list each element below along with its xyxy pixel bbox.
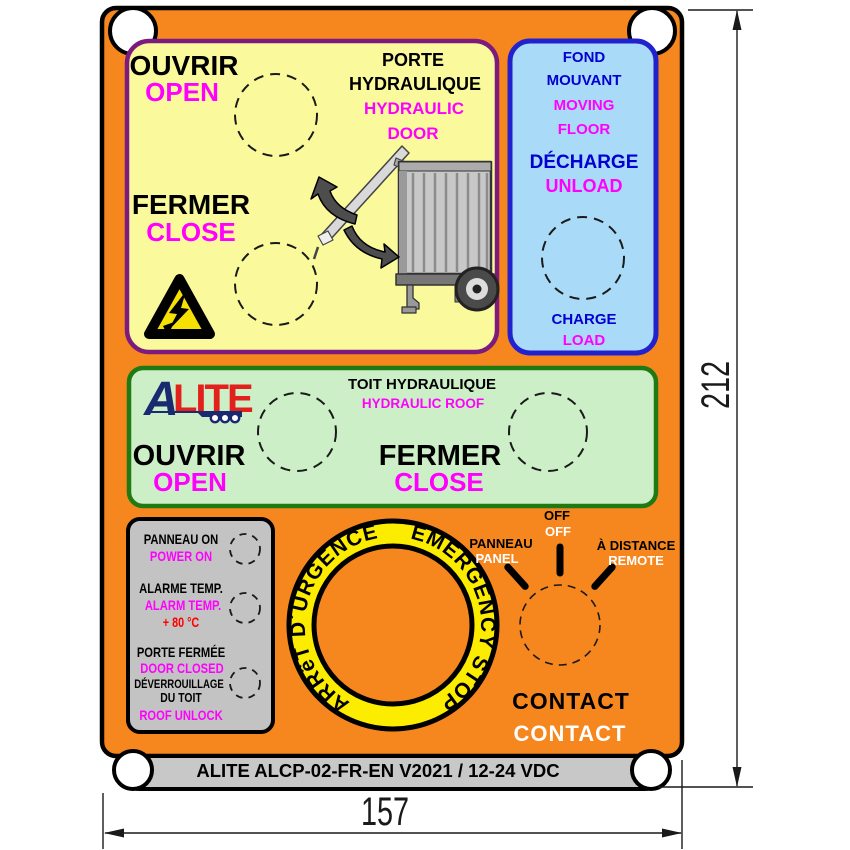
selector-panel-label-fr: PANNEAU (469, 537, 532, 550)
alite-logo: A LITE (143, 373, 253, 426)
power-on-label-fr: PANNEAU ON (144, 532, 218, 546)
trailer-foot (402, 307, 416, 313)
door-title-fr-1: PORTE (382, 51, 444, 69)
roof-unlock-label-en: ROOF UNLOCK (139, 708, 222, 722)
bottom-right-notch (632, 751, 670, 789)
arrow-right (662, 829, 682, 838)
contact-label-en: CONTACT (514, 723, 627, 745)
logo-wheel-2 (221, 414, 229, 422)
wheel-hub (473, 285, 482, 294)
door-open-label-fr: OUVRIR (130, 52, 239, 80)
door-title-fr-2: HYDRAULIQUE (349, 75, 481, 93)
floor-unload-fr: DÉCHARGE (530, 153, 639, 172)
door-close-label-en: CLOSE (146, 219, 236, 245)
door-title-en-1: HYDRAULIC (364, 100, 464, 117)
estop-ring: ARRêT D´URGENCE EMERGENCY STOP (287, 520, 500, 729)
selector-off-label-en: OFF (545, 525, 571, 538)
arrow-up (733, 10, 742, 30)
selector-remote-label-en: REMOTE (608, 554, 664, 567)
door-close-label-fr: FERMER (132, 191, 250, 219)
alarm-temp-label-en: ALARM TEMP. (145, 598, 221, 612)
selector-panel-label-en: PANEL (475, 552, 518, 565)
contact-label-fr: CONTACT (512, 690, 630, 713)
power-on-label-en: POWER ON (150, 549, 212, 563)
floor-title-en-2: FLOOR (558, 122, 611, 137)
floor-unload-en: UNLOAD (546, 177, 623, 195)
bottom-left-notch (114, 751, 152, 789)
floor-title-en-1: MOVING (554, 98, 615, 113)
floor-load-en: LOAD (563, 333, 606, 348)
arrow-left (104, 829, 124, 838)
door-closed-label-en: DOOR CLOSED (140, 661, 223, 675)
alarm-temp-value: + 80 °C (163, 616, 199, 630)
arrow-down (733, 767, 742, 787)
floor-load-fr: CHARGE (551, 312, 616, 327)
width-dimension-value: 157 (361, 792, 409, 832)
roof-unlock-label-fr-2: DU TOIT (160, 691, 201, 704)
door-title-en-2: DOOR (388, 125, 439, 142)
trailer-top-rail (399, 162, 491, 171)
roof-open-label-en: OPEN (153, 469, 227, 495)
height-dimension-value: 212 (696, 361, 736, 409)
roof-close-label-en: CLOSE (394, 469, 484, 495)
trailer-edge (399, 171, 407, 274)
floor-title-fr-2: MOUVANT (547, 73, 622, 88)
estop-inner-disc (314, 546, 472, 704)
logo-wheel-1 (211, 414, 219, 422)
panel-drawing: A LITE ARRêT D´URGENCE EMERGENCY STOP (0, 0, 850, 850)
roof-title-fr: TOIT HYDRAULIQUE (348, 377, 496, 392)
floor-title-fr-1: FOND (563, 50, 606, 65)
alarm-temp-label-fr: ALARME TEMP. (139, 581, 223, 595)
selector-remote-label-fr: À DISTANCE (597, 539, 675, 552)
roof-unlock-label-fr-1: DÉVERROUILLAGE (134, 678, 224, 690)
roof-title-en: HYDRAULIC ROOF (362, 397, 484, 411)
logo-wheel-3 (231, 414, 239, 422)
selector-off-label-fr: OFF (544, 509, 570, 522)
model-label: ALITE ALCP-02-FR-EN V2021 / 12-24 VDC (196, 762, 559, 781)
door-open-label-en: OPEN (145, 79, 219, 105)
door-closed-label-fr: PORTE FERMÉE (137, 645, 225, 659)
